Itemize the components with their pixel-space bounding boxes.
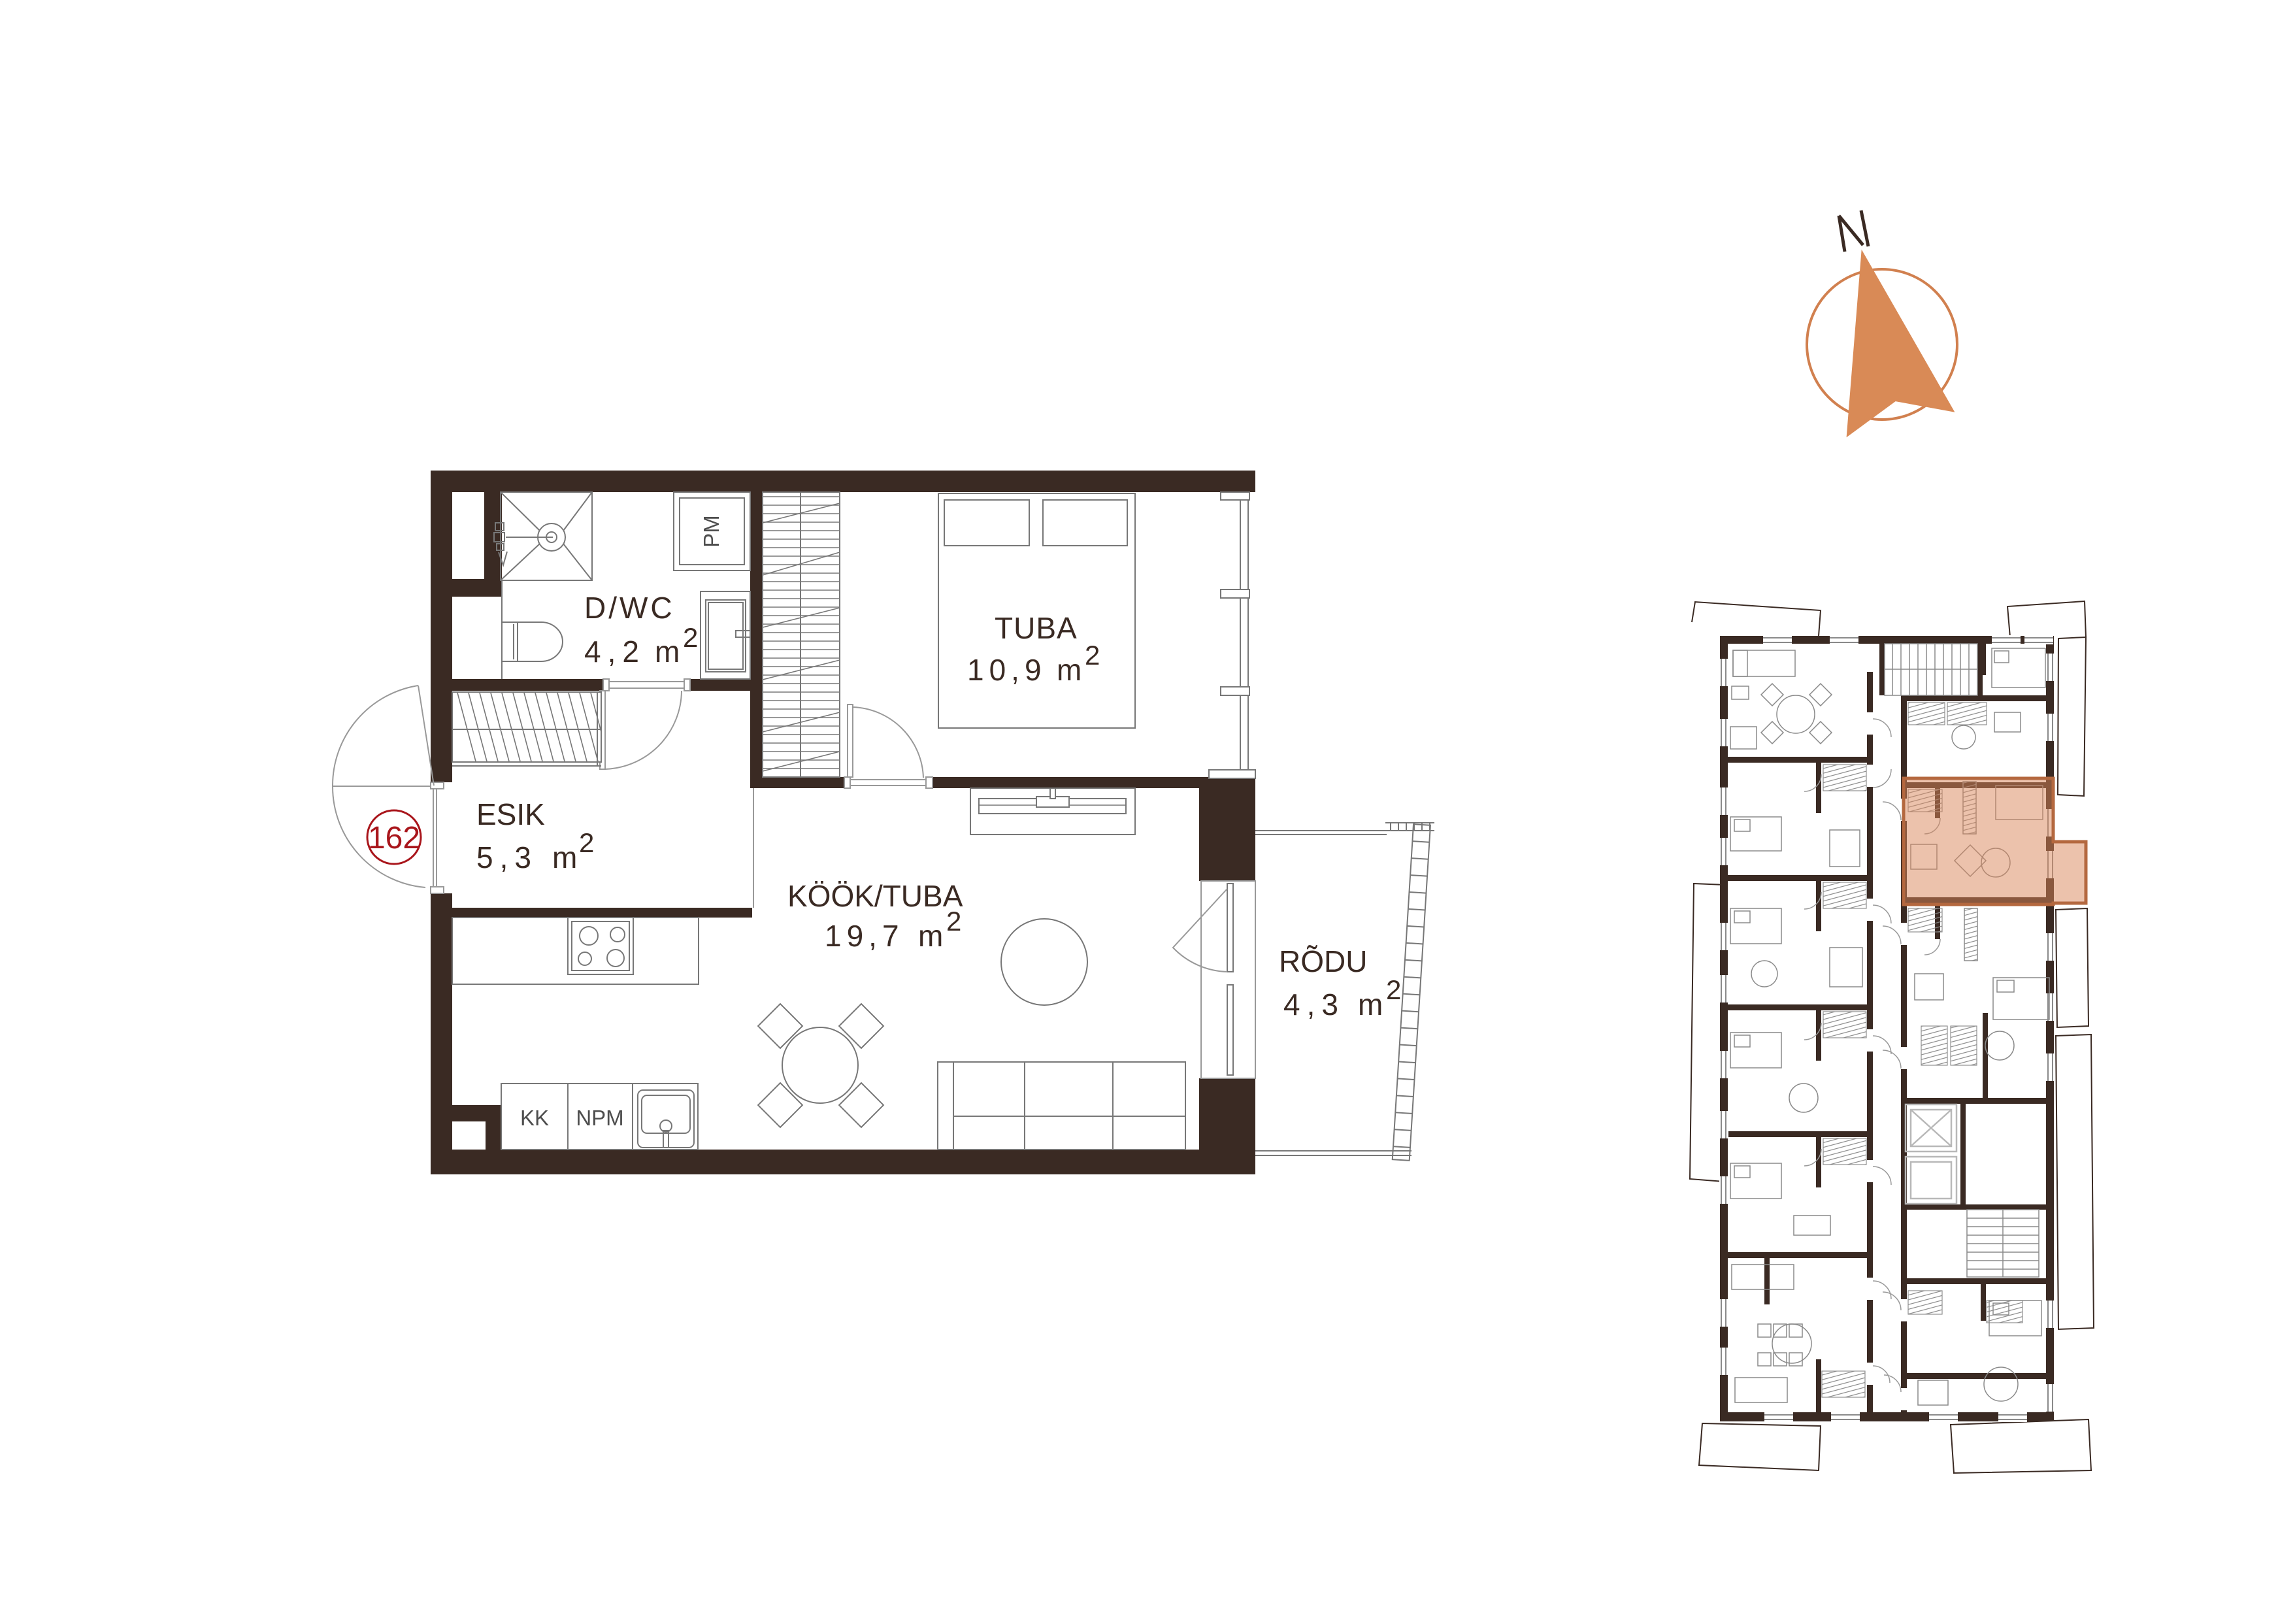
svg-text:10,9: 10,9 — [967, 653, 1047, 687]
svg-text:m: m — [1057, 653, 1081, 687]
svg-text:2: 2 — [946, 906, 961, 936]
svg-text:5,3: 5,3 — [476, 840, 538, 874]
svg-text:RÕDU: RÕDU — [1279, 944, 1367, 978]
svg-text:162: 162 — [368, 821, 420, 855]
svg-text:m: m — [918, 919, 943, 953]
svg-text:4,3: 4,3 — [1283, 987, 1345, 1021]
svg-text:19,7: 19,7 — [825, 919, 904, 953]
svg-text:D/WC: D/WC — [584, 591, 675, 625]
svg-text:m: m — [655, 635, 680, 669]
svg-text:2: 2 — [1386, 974, 1401, 1005]
svg-text:4,2: 4,2 — [584, 635, 646, 669]
svg-text:m: m — [552, 840, 577, 874]
svg-text:PM: PM — [699, 515, 723, 548]
svg-text:ESIK: ESIK — [476, 797, 545, 831]
svg-text:2: 2 — [683, 622, 698, 653]
svg-text:KK: KK — [520, 1106, 549, 1130]
svg-text:KÖÖK/TUBA: KÖÖK/TUBA — [787, 879, 963, 913]
svg-text:2: 2 — [579, 827, 594, 858]
svg-text:NPM: NPM — [576, 1106, 623, 1130]
svg-text:2: 2 — [1085, 640, 1100, 671]
svg-text:TUBA: TUBA — [995, 611, 1078, 645]
svg-text:m: m — [1358, 987, 1383, 1021]
